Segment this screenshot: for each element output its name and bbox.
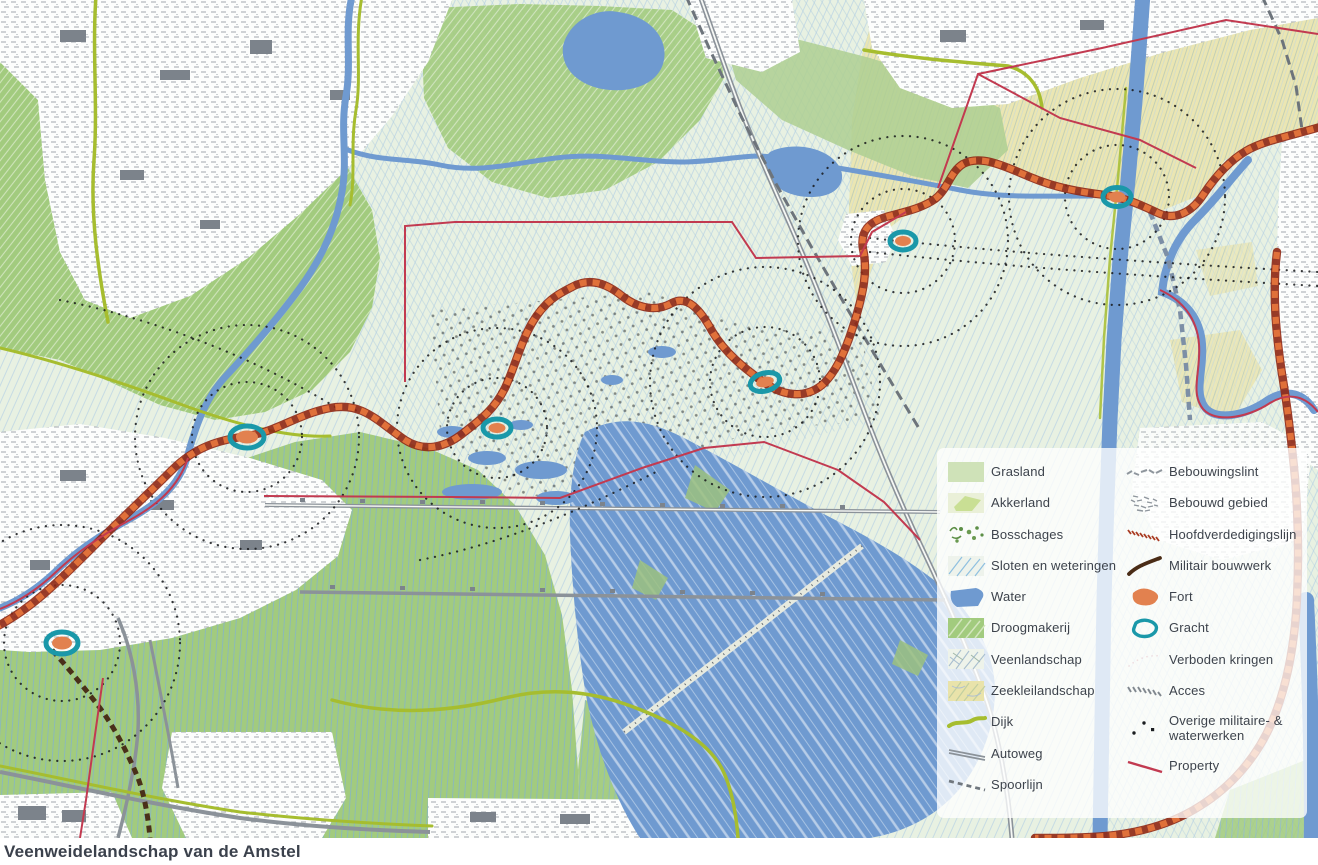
legend-item-fort: Fort: [1125, 581, 1301, 612]
water-swatch: [947, 586, 991, 608]
legend-item-property: Property: [1125, 750, 1301, 781]
legend-label: Akkerland: [991, 495, 1050, 510]
spoorlijn-line: [947, 774, 991, 796]
verboden-kringen-blank: [1125, 648, 1169, 670]
map-caption: Veenweidelandschap van de Amstel: [4, 842, 301, 862]
legend-item-militair-bouwwerk: Militair bouwwerk: [1125, 550, 1301, 581]
legend-item-water: Water: [947, 581, 1117, 612]
property-line: [1125, 755, 1169, 777]
legend-label: Acces: [1169, 683, 1205, 698]
map-legend: Grasland Akkerland Bosschages: [937, 448, 1307, 818]
legend-label: Bebouwd gebied: [1169, 495, 1268, 510]
legend-label: Militair bouwwerk: [1169, 558, 1271, 573]
map-figure: Grasland Akkerland Bosschages: [0, 0, 1318, 865]
legend-label: Fort: [1169, 589, 1193, 604]
legend-item-spoorlijn: Spoorlijn: [947, 769, 1117, 800]
legend-item-autoweg: Autoweg: [947, 738, 1117, 769]
hoofdverdedigingslijn-dashes: [1125, 523, 1169, 545]
veenlandschap-swatch: [947, 648, 991, 670]
legend-item-gracht: Gracht: [1125, 612, 1301, 643]
legend-item-sloten: Sloten en weteringen: [947, 550, 1117, 581]
gracht-ring: [1125, 617, 1169, 639]
legend-label: Droogmakerij: [991, 620, 1070, 635]
legend-column-left: Grasland Akkerland Bosschages: [947, 456, 1117, 800]
legend-label: Gracht: [1169, 620, 1209, 635]
acces-dashes: [1125, 680, 1169, 702]
zeekleilandschap-swatch: [947, 680, 991, 702]
legend-label: Bebouwingslint: [1169, 464, 1259, 479]
bebouwingslint-squiggle: [1125, 461, 1169, 483]
legend-label: Overige militaire- & waterwerken: [1169, 713, 1301, 744]
legend-item-dijk: Dijk: [947, 706, 1117, 737]
legend-item-droogmakerij: Droogmakerij: [947, 612, 1117, 643]
legend-item-grasland: Grasland: [947, 456, 1117, 487]
legend-item-veenlandschap: Veenlandschap: [947, 644, 1117, 675]
legend-label: Grasland: [991, 464, 1045, 479]
bosschages-swatch: [947, 523, 991, 545]
legend-item-zeekleilandschap: Zeekleilandschap: [947, 675, 1117, 706]
legend-label: Spoorlijn: [991, 777, 1043, 792]
legend-label: Bosschages: [991, 527, 1063, 542]
legend-item-overige-werken: Overige militaire- & waterwerken: [1125, 706, 1301, 750]
dijk-line: [947, 711, 991, 733]
legend-label: Veenlandschap: [991, 652, 1082, 667]
legend-label: Property: [1169, 758, 1219, 773]
legend-label: Hoofdverdedigingslijn: [1169, 527, 1296, 542]
fort-blob: [1125, 586, 1169, 608]
legend-column-right: Bebouwingslint Bebouwd gebied Hoofdverde…: [1125, 456, 1301, 782]
legend-label: Zeekleilandschap: [991, 683, 1095, 698]
legend-item-verboden-kringen: Verboden kringen: [1125, 644, 1301, 675]
legend-label: Sloten en weteringen: [991, 558, 1116, 573]
legend-label: Dijk: [991, 714, 1013, 729]
grasland-swatch: [947, 461, 991, 483]
bebouwd-gebied-texture: [1125, 492, 1169, 514]
legend-label: Autoweg: [991, 746, 1043, 761]
legend-item-acces: Acces: [1125, 675, 1301, 706]
legend-item-bebouwd-gebied: Bebouwd gebied: [1125, 487, 1301, 518]
droogmakerij-swatch: [947, 617, 991, 639]
autoweg-line: [947, 742, 991, 764]
overige-dots: [1125, 717, 1169, 739]
legend-item-akkerland: Akkerland: [947, 487, 1117, 518]
militair-bouwwerk-stroke: [1125, 555, 1169, 577]
akkerland-swatch: [947, 492, 991, 514]
legend-item-bosschages: Bosschages: [947, 519, 1117, 550]
legend-label: Verboden kringen: [1169, 652, 1273, 667]
sloten-swatch: [947, 555, 991, 577]
legend-label: Water: [991, 589, 1026, 604]
legend-item-bebouwingslint: Bebouwingslint: [1125, 456, 1301, 487]
legend-item-hoofdverdedigingslijn: Hoofdverdedigingslijn: [1125, 519, 1301, 550]
